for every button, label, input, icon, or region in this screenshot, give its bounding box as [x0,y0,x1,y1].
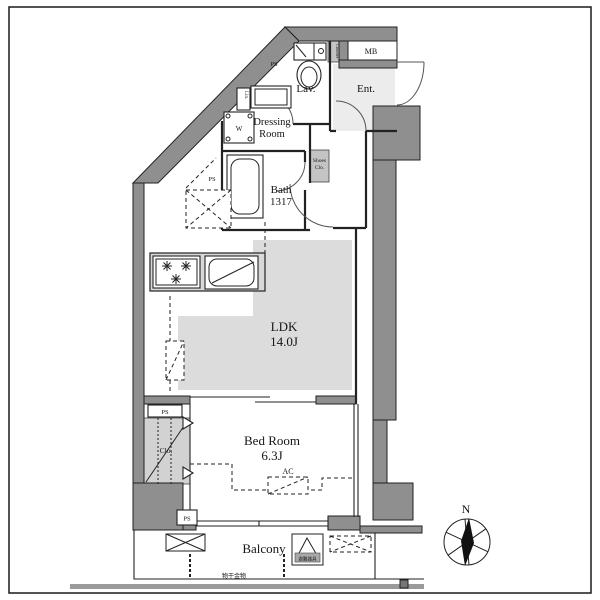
bedroom-label: Bed Room [244,433,300,448]
floor-plan: LDK 14.0J Bed Room 6.3J Bath 1317 Dressi… [0,0,600,600]
evacuation-hatch-label: 避難器具 [299,556,317,563]
toilet-tank [294,43,326,60]
linen-label: Lin. [243,91,248,99]
counter-label: Counter [335,44,340,59]
wall-mb-bottom [339,60,397,68]
lav-label: Lav. [296,83,315,95]
boundary-marker [400,580,408,588]
laundry-fitting-label: 物干金物 [222,572,246,580]
wall-south-right [328,516,360,530]
balcony-dashed-x [330,536,371,552]
dressing-room-label-2: Room [259,129,285,140]
balcony-items [166,534,408,588]
sliding-door-ldk-bedroom [190,397,316,402]
ac-label: AC [282,467,293,476]
wall-bottom-right-block [373,483,413,520]
compass-rose [444,518,490,566]
ldk-size-label: 14.0J [270,334,298,349]
site-boundary-band [70,584,424,589]
floor-plan-page: LDK 14.0J Bed Room 6.3J Bath 1317 Dressi… [0,0,600,600]
bath-size-label: 1317 [270,196,293,208]
bedroom-size-label: 6.3J [261,448,282,463]
kitchen-sink-frame [205,256,258,289]
shoes-closet-label-2: Clo. [315,165,325,171]
window-east [354,404,358,517]
washer-label: W [236,125,243,133]
wall-left [133,183,144,530]
wall-right-block [373,106,420,160]
ps-label-box-upper: PS [161,409,169,416]
wall-bedroom-north-left [144,396,190,404]
ps-label-mid: PS [208,176,216,183]
bathtub-frame [227,155,263,218]
dressing-room-label-1: Dressing [253,117,291,128]
wall-right-column [373,160,396,420]
ldk-label: LDK [271,319,298,334]
wall-balcony-right-bar [360,526,422,533]
window-south-balcony [196,521,328,526]
mb-label: MB [365,47,377,56]
balcony-planter-x [166,534,205,551]
bath-label: Bath [271,184,292,196]
ps-label-top: PS [270,61,278,68]
entrance-door-arc [397,62,424,105]
balcony-label: Balcony [242,541,286,556]
wall-right-column-lower [373,420,387,483]
window-south-caps [196,517,328,530]
kitchen-ceiling-diagonal [186,158,216,188]
wall-bottom-left-block [133,483,183,530]
ps-label-box-lower: PS [183,516,191,523]
compass-north-label: N [462,502,471,516]
wall-top-band [285,27,397,41]
ent-label: Ent. [357,83,375,95]
compass-needle [461,518,474,566]
wall-bedroom-north-right [316,396,356,404]
closet-label: Clo. [160,446,173,455]
shoes-closet-label-1: Shoes [313,158,326,164]
hall-ldk-door-arc [290,184,333,227]
